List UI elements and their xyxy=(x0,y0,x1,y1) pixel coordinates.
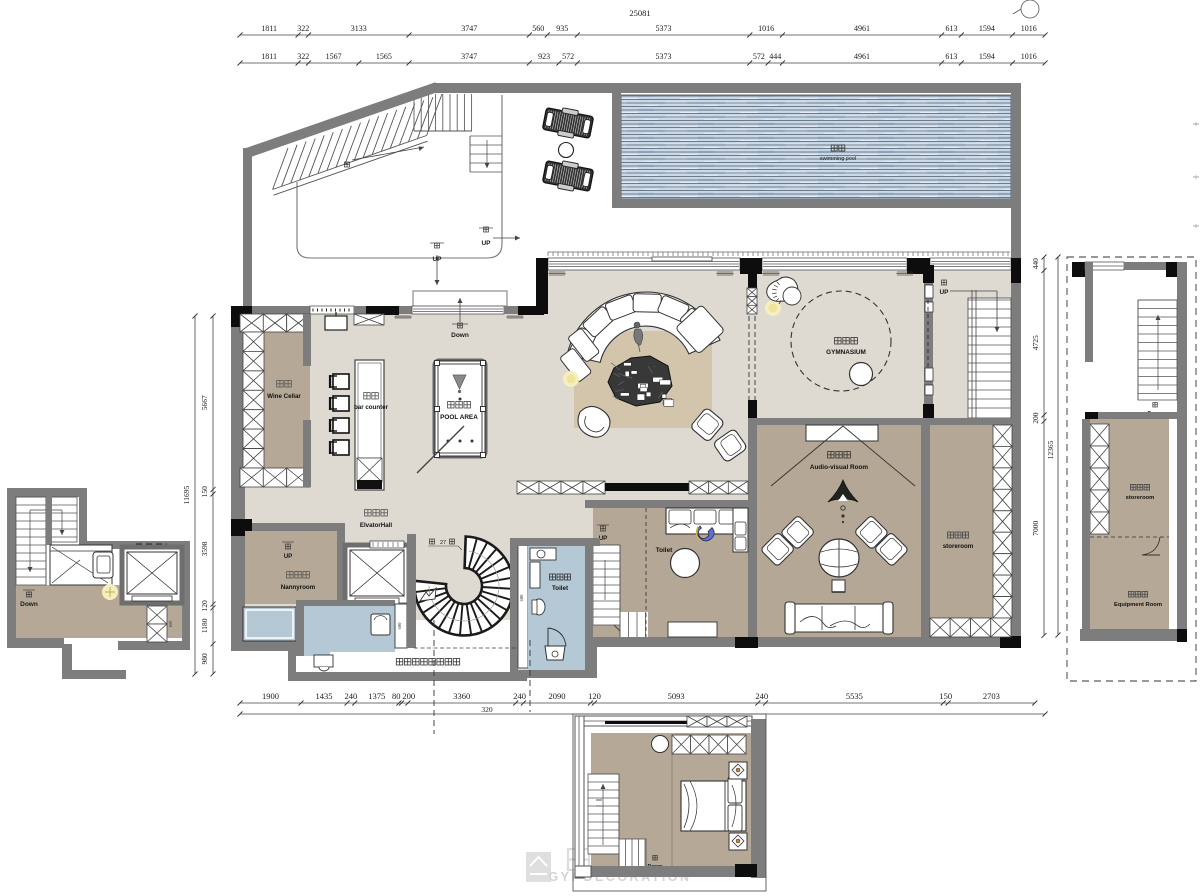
svg-text:923: 923 xyxy=(538,52,550,61)
svg-text:5535: 5535 xyxy=(846,691,863,701)
svg-text:4725: 4725 xyxy=(1031,335,1040,350)
svg-text:4961: 4961 xyxy=(854,24,870,33)
svg-text:600: 600 xyxy=(397,622,402,630)
svg-text:980: 980 xyxy=(200,653,209,665)
svg-text:150: 150 xyxy=(939,691,952,701)
svg-text:Toilet: Toilet xyxy=(552,585,568,592)
svg-text:440: 440 xyxy=(1031,258,1040,270)
svg-text:swimming pool: swimming pool xyxy=(820,156,856,162)
svg-text:4961: 4961 xyxy=(854,52,870,61)
svg-text:200: 200 xyxy=(402,691,415,701)
svg-text:UP: UP xyxy=(481,240,491,247)
svg-text:3133: 3133 xyxy=(351,24,367,33)
svg-text:613: 613 xyxy=(945,52,957,61)
svg-text:5667: 5667 xyxy=(200,395,209,410)
svg-text:240: 240 xyxy=(513,691,526,701)
svg-text:1811: 1811 xyxy=(261,24,277,33)
svg-text:UP: UP xyxy=(284,553,293,560)
svg-text:1016: 1016 xyxy=(1021,24,1037,33)
svg-text:3360: 3360 xyxy=(453,691,470,701)
svg-text:80: 80 xyxy=(392,691,401,701)
svg-text:12365: 12365 xyxy=(1046,440,1055,459)
svg-text:Wine Cellar: Wine Cellar xyxy=(267,393,301,400)
svg-text:1567: 1567 xyxy=(326,52,342,61)
svg-text:Toilet: Toilet xyxy=(656,547,673,554)
svg-text:1016: 1016 xyxy=(758,24,774,33)
svg-text:ElvatorHall: ElvatorHall xyxy=(360,522,393,529)
svg-text:150: 150 xyxy=(200,486,209,498)
svg-text:322: 322 xyxy=(297,24,309,33)
svg-text:3747: 3747 xyxy=(461,52,477,61)
svg-text:1594: 1594 xyxy=(979,52,995,61)
svg-text:2090: 2090 xyxy=(549,691,566,701)
svg-text:572: 572 xyxy=(753,52,765,61)
svg-text:1016: 1016 xyxy=(1021,52,1037,61)
svg-text:POOL AREA: POOL AREA xyxy=(440,414,478,421)
svg-text:storeroom: storeroom xyxy=(943,543,974,550)
svg-text:322: 322 xyxy=(297,52,309,61)
svg-text:1565: 1565 xyxy=(376,52,392,61)
svg-text:Down: Down xyxy=(20,601,38,608)
svg-text:27: 27 xyxy=(440,540,446,546)
svg-text:7000: 7000 xyxy=(1031,521,1040,536)
svg-text:Equipment Room: Equipment Room xyxy=(1114,602,1162,608)
svg-text:444: 444 xyxy=(769,52,781,61)
svg-text:1594: 1594 xyxy=(979,24,995,33)
svg-text:600: 600 xyxy=(519,594,524,602)
svg-text:Audio-visual Room: Audio-visual Room xyxy=(810,464,869,471)
svg-text:320: 320 xyxy=(481,705,493,714)
svg-text:storeroom: storeroom xyxy=(1126,495,1155,501)
svg-text:Down: Down xyxy=(451,332,469,339)
svg-text:1180: 1180 xyxy=(200,618,209,633)
svg-text:3598: 3598 xyxy=(200,541,209,556)
svg-text:200: 200 xyxy=(1031,412,1040,424)
svg-text:UP: UP xyxy=(939,289,949,296)
svg-text:5373: 5373 xyxy=(656,52,672,61)
svg-text:5093: 5093 xyxy=(668,691,685,701)
svg-text:120: 120 xyxy=(200,600,209,612)
svg-text:bar counter: bar counter xyxy=(354,404,389,411)
svg-text:240: 240 xyxy=(345,691,358,701)
svg-text:935: 935 xyxy=(556,24,568,33)
svg-text:1375: 1375 xyxy=(368,691,385,701)
svg-text:1900: 1900 xyxy=(262,691,279,701)
svg-text:Nannyroom: Nannyroom xyxy=(281,584,316,591)
svg-text:1811: 1811 xyxy=(261,52,277,61)
svg-text:25081: 25081 xyxy=(629,8,650,18)
svg-text:1435: 1435 xyxy=(316,691,333,701)
svg-text:572: 572 xyxy=(562,52,574,61)
svg-text:613: 613 xyxy=(946,24,958,33)
svg-text:3747: 3747 xyxy=(461,24,477,33)
svg-text:5373: 5373 xyxy=(656,24,672,33)
svg-text:GYMNASIUM: GYMNASIUM xyxy=(826,349,866,356)
svg-text:240: 240 xyxy=(755,691,768,701)
svg-text:600: 600 xyxy=(168,621,173,627)
svg-text:120: 120 xyxy=(588,691,601,701)
svg-text:2703: 2703 xyxy=(983,691,1000,701)
svg-text:560: 560 xyxy=(532,24,544,33)
svg-text:UP: UP xyxy=(432,256,442,263)
svg-text:11695: 11695 xyxy=(182,486,191,505)
